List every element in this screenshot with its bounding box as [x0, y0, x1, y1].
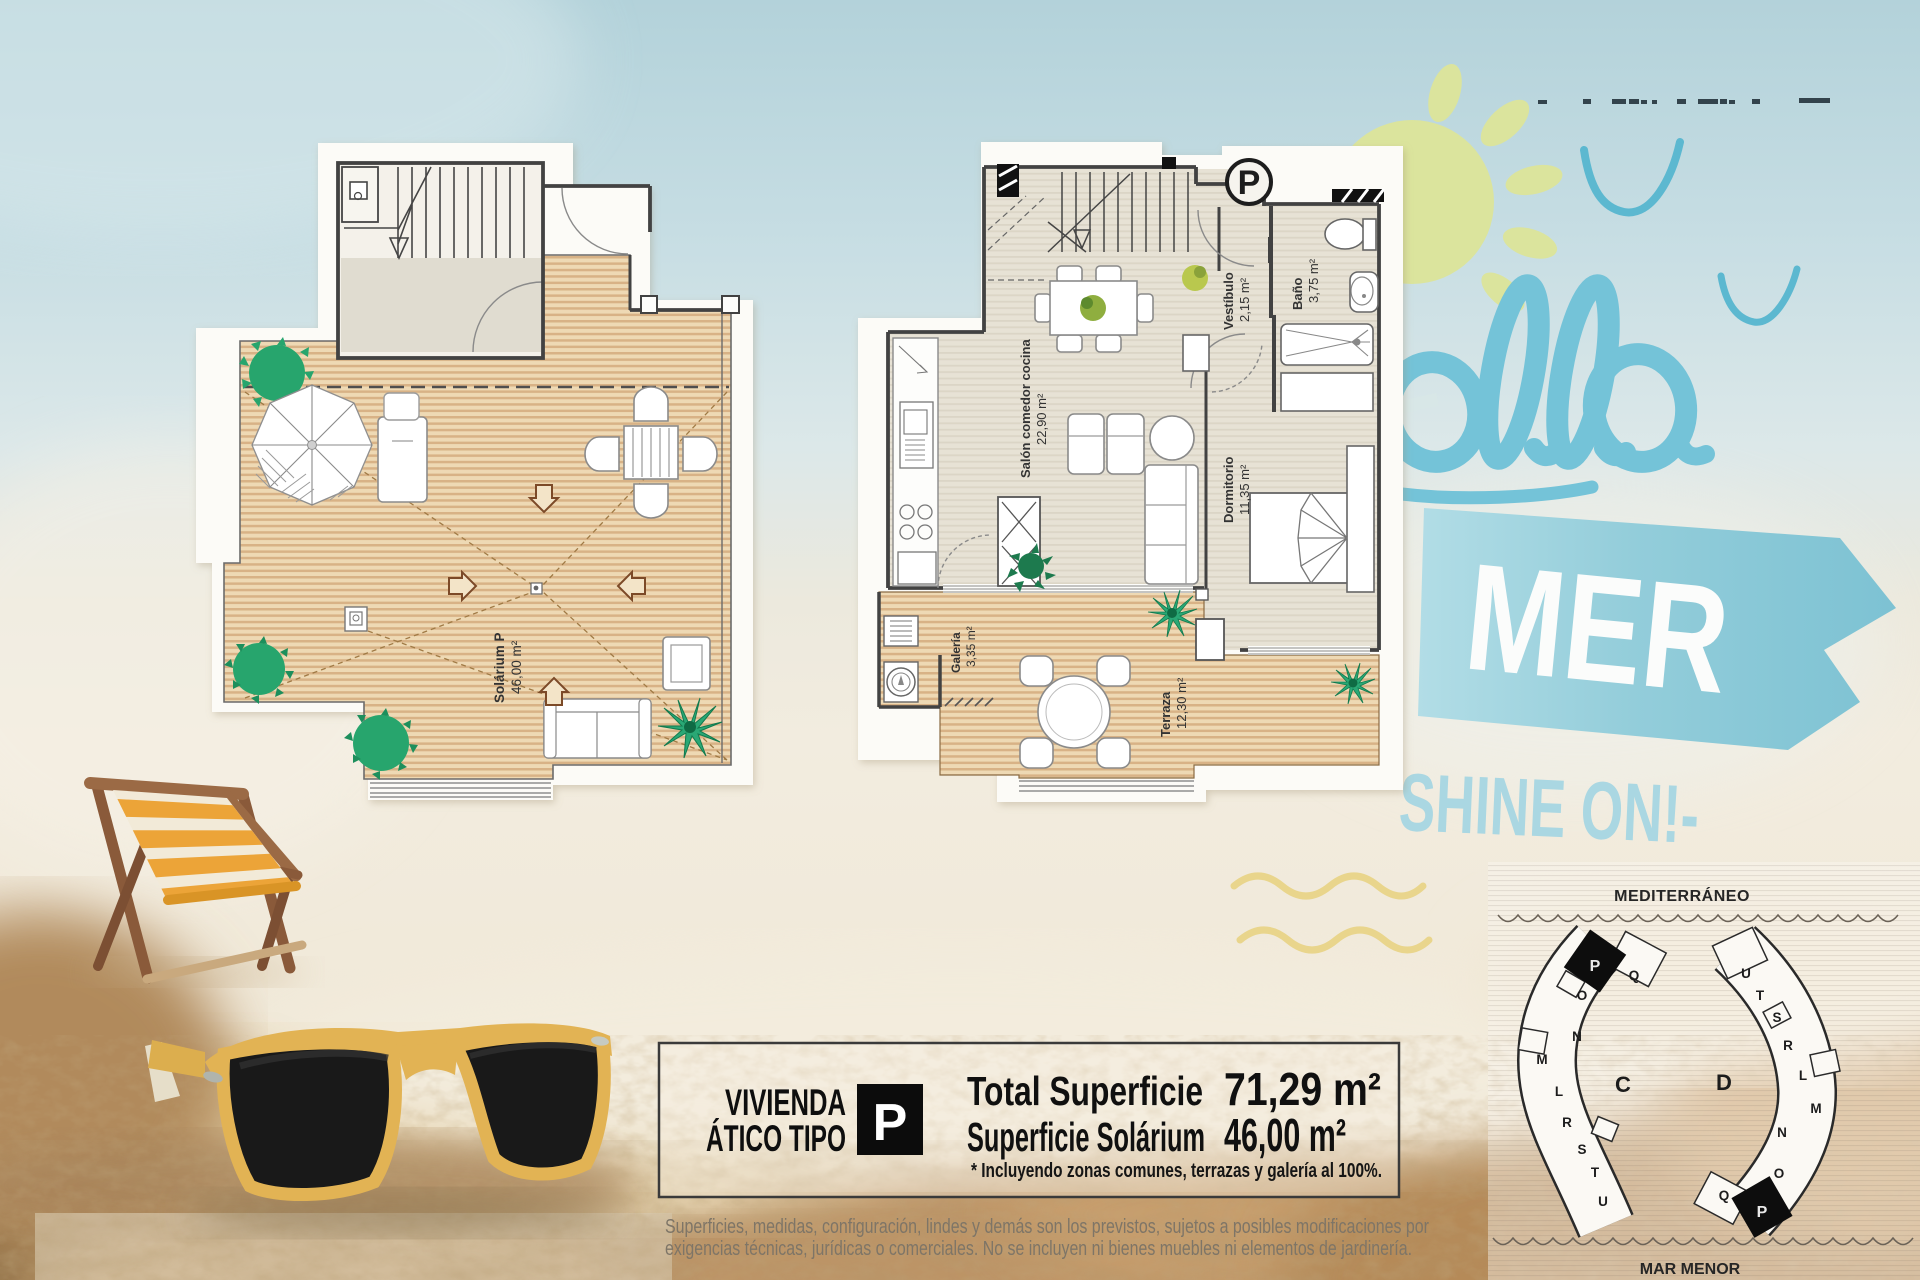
svg-text:22,90 m²: 22,90 m²	[1034, 393, 1049, 445]
svg-text:Terraza: Terraza	[1158, 691, 1173, 737]
svg-text:MAR MENOR: MAR MENOR	[1640, 1261, 1741, 1278]
svg-text:M: M	[1536, 1052, 1547, 1067]
svg-text:N: N	[1777, 1125, 1787, 1140]
svg-text:3,75 m²: 3,75 m²	[1306, 258, 1321, 303]
svg-text:Salón comedor cocina: Salón comedor cocina	[1018, 339, 1033, 478]
svg-text:MEDITERRÁNEO: MEDITERRÁNEO	[1614, 886, 1750, 905]
svg-text:R: R	[1562, 1115, 1572, 1130]
svg-text:R: R	[1783, 1038, 1793, 1053]
svg-text:U: U	[1741, 966, 1751, 981]
svg-text:Baño: Baño	[1290, 277, 1305, 310]
svg-text:L: L	[1555, 1084, 1563, 1099]
svg-text:* Incluyendo zonas comunes, te: * Incluyendo zonas comunes, terrazas y g…	[971, 1160, 1382, 1182]
svg-text:T: T	[1756, 988, 1765, 1003]
svg-text:P: P	[1590, 958, 1601, 975]
svg-text:L: L	[1799, 1068, 1807, 1083]
svg-text:46,00 m²: 46,00 m²	[1224, 1109, 1346, 1161]
svg-text:Solárium P: Solárium P	[492, 632, 507, 703]
svg-text:exigencias técnicas, jurídicas: exigencias técnicas, jurídicas o comerci…	[665, 1238, 1412, 1260]
svg-text:M: M	[1810, 1101, 1821, 1116]
svg-text:O: O	[1774, 1166, 1785, 1181]
svg-text:Q: Q	[1719, 1188, 1730, 1203]
svg-text:Superficies, medidas, configur: Superficies, medidas, configuración, lin…	[665, 1216, 1429, 1238]
svg-text:P: P	[1757, 1204, 1768, 1221]
svg-text:3,35 m²: 3,35 m²	[964, 626, 978, 667]
svg-text:D: D	[1716, 1070, 1732, 1095]
svg-text:Galería: Galería	[949, 632, 963, 673]
svg-text:MER: MER	[1459, 532, 1736, 726]
svg-text:P: P	[873, 1094, 908, 1152]
svg-text:46,00 m²: 46,00 m²	[509, 640, 524, 694]
svg-text:O: O	[1577, 988, 1588, 1003]
svg-text:T: T	[1591, 1165, 1600, 1180]
svg-text:Total Superficie: Total Superficie	[967, 1068, 1203, 1114]
svg-text:Dormitorio: Dormitorio	[1221, 457, 1236, 524]
svg-text:S: S	[1577, 1142, 1586, 1157]
svg-text:71,29 m²: 71,29 m²	[1224, 1063, 1381, 1115]
svg-text:11,35 m²: 11,35 m²	[1237, 464, 1252, 515]
svg-text:C: C	[1615, 1072, 1631, 1097]
svg-text:SHINE ON!-: SHINE ON!-	[1397, 757, 1701, 861]
svg-text:U: U	[1598, 1194, 1608, 1209]
svg-text:Vestíbulo: Vestíbulo	[1221, 272, 1236, 330]
svg-text:VIVIENDA: VIVIENDA	[725, 1082, 846, 1123]
svg-text:ÁTICO TIPO: ÁTICO TIPO	[706, 1118, 846, 1159]
svg-text:Superficie Solárium: Superficie Solárium	[967, 1114, 1205, 1160]
svg-text:N: N	[1572, 1029, 1582, 1044]
svg-text:S: S	[1772, 1010, 1781, 1025]
svg-text:2,15 m²: 2,15 m²	[1237, 277, 1252, 322]
svg-text:Q: Q	[1629, 968, 1640, 983]
svg-text:12,30 m²: 12,30 m²	[1174, 677, 1189, 729]
svg-text:P: P	[1238, 164, 1261, 202]
